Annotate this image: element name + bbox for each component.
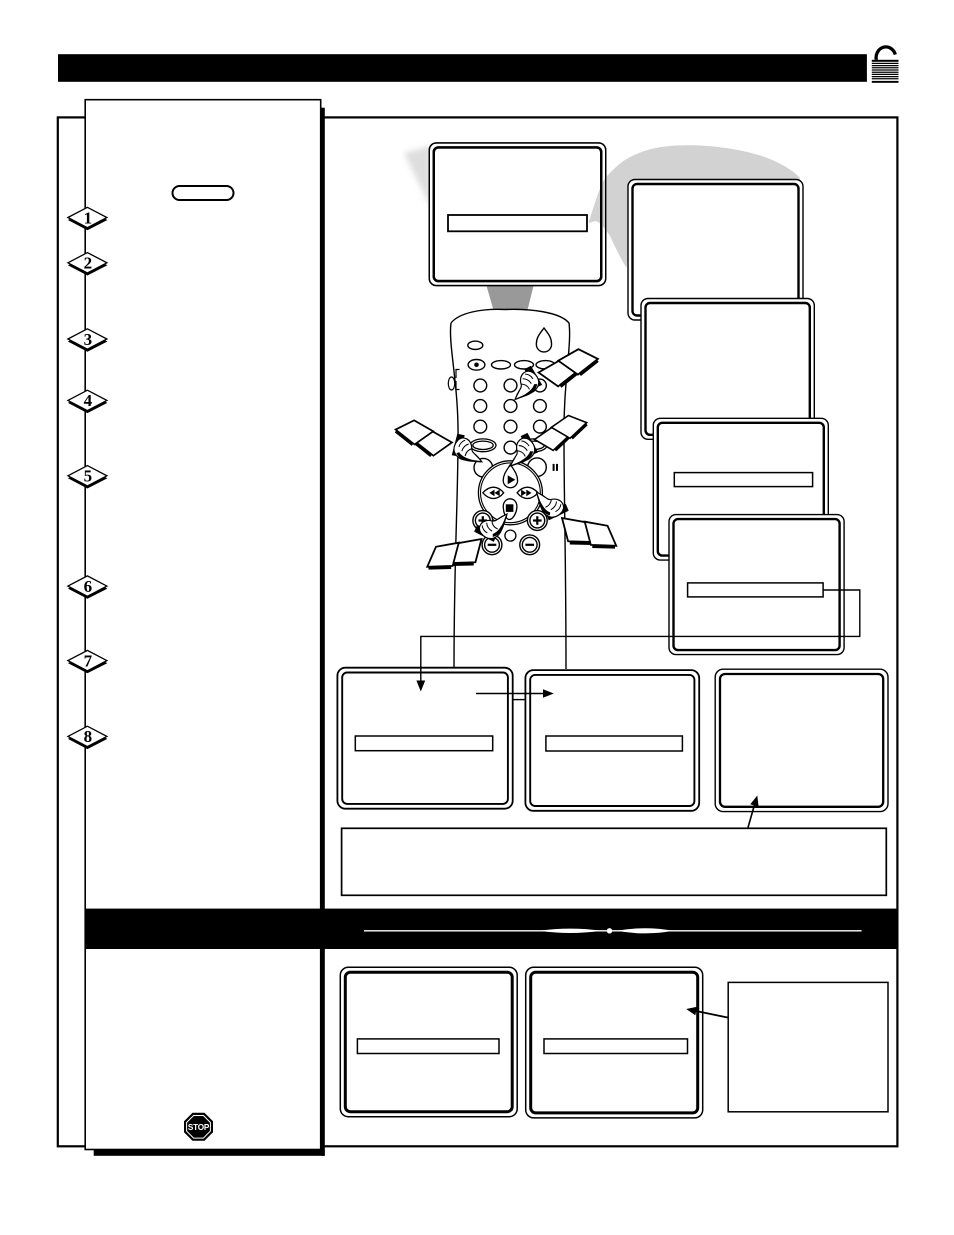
svg-text:5: 5 bbox=[84, 467, 93, 486]
svg-text:1: 1 bbox=[84, 208, 93, 227]
svg-text:STOP: STOP bbox=[188, 1123, 210, 1132]
svg-text:3: 3 bbox=[84, 330, 93, 349]
svg-text:8: 8 bbox=[84, 727, 93, 746]
svg-text:4: 4 bbox=[84, 391, 93, 410]
svg-text:7: 7 bbox=[84, 651, 93, 670]
svg-text:2: 2 bbox=[84, 254, 93, 273]
svg-text:6: 6 bbox=[84, 577, 93, 596]
